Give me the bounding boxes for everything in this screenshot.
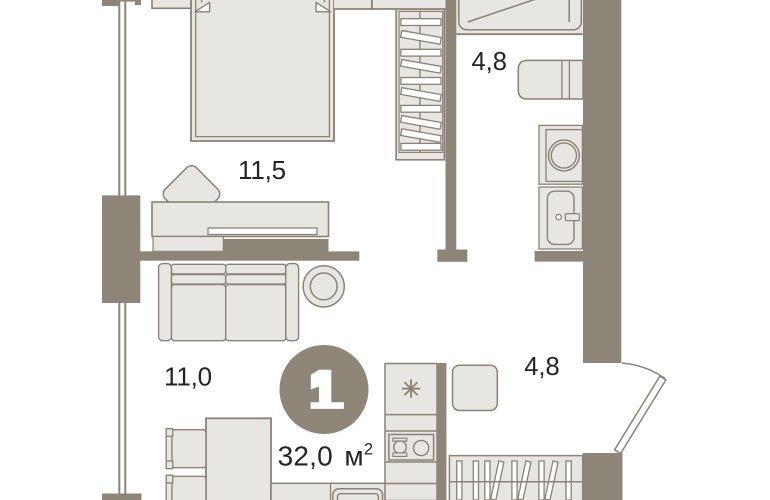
svg-text:11,5: 11,5 — [238, 155, 286, 185]
svg-text:32,0 м2: 32,0 м2 — [278, 441, 374, 472]
svg-text:4,8: 4,8 — [472, 48, 507, 76]
svg-text:4,8: 4,8 — [524, 353, 559, 381]
svg-text:11,0: 11,0 — [164, 361, 212, 391]
